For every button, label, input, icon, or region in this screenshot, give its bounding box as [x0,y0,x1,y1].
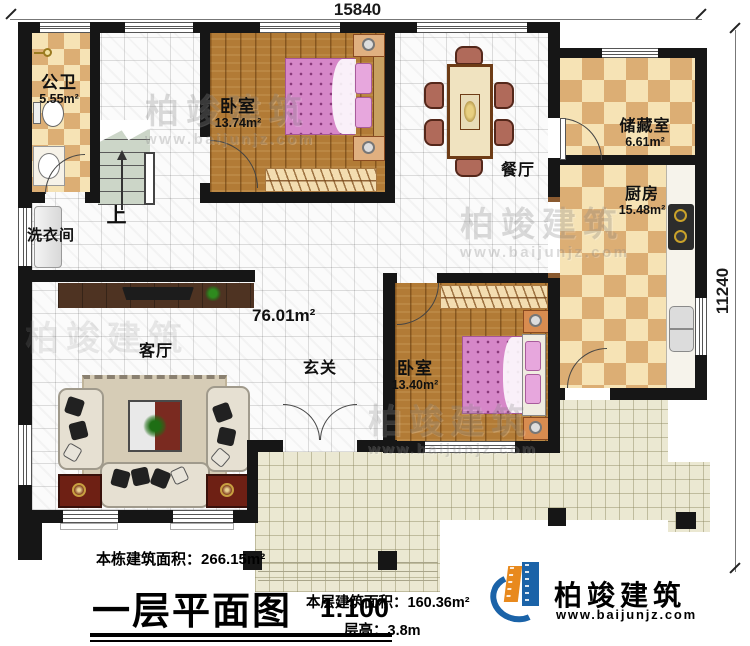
window [417,22,527,33]
nightstand-knob [362,141,375,154]
floor-height: 层高：3.8m [344,619,421,640]
dining-label: 餐厅 [488,162,548,180]
bathroom-label: 公卫 5.55m² [28,74,90,106]
storage-label: 储藏室 6.61m² [602,118,688,149]
logo-tower-blue [522,562,539,606]
bed-blanket [332,59,356,134]
window [125,22,193,33]
column [548,508,566,526]
laundry-label: 洗衣间 [20,228,82,245]
wall [200,192,395,203]
wall [357,440,397,452]
wall [548,22,560,118]
pillow [355,97,372,128]
wall [247,440,258,523]
window [18,425,32,485]
bedroom1-label: 卧室 13.74m² [200,98,276,130]
pillow [355,63,372,94]
end-table-medallion [72,483,86,497]
dining-chair [424,119,444,146]
nightstand-knob [362,38,375,51]
title-underline-thin [90,640,392,642]
dimension-label-right: 11240 [713,246,733,336]
shower-head-icon [43,48,52,57]
open-area-label: 76.01m² [252,306,332,326]
headboard [373,56,385,138]
window [695,298,707,355]
wall [548,158,560,202]
nightstand-knob [529,314,542,327]
dimension-tick [5,8,16,19]
sofa-pillow [216,426,236,446]
dining-chair [455,46,483,65]
floor-area: 本层建筑面积：160.36m² [306,591,470,612]
dining-chair [494,119,514,146]
up-arrow [121,158,123,210]
nightstand-knob [529,421,542,434]
dimension-tick [695,8,706,19]
wall [610,388,707,400]
wall [18,523,42,560]
sink-divider [670,328,693,330]
up-arrow-head [117,150,127,160]
window-sill [60,523,118,530]
stair-rail [144,152,155,205]
dining-chair [455,158,483,177]
plant-icon [205,286,221,301]
wall [548,278,560,453]
window [173,510,233,523]
kitchen-label: 厨房 15.48m² [598,186,686,217]
wall [385,33,395,192]
plant-icon [143,414,167,438]
wall [90,33,100,203]
pillow [525,341,541,371]
dining-chair [424,82,444,109]
door-jamb [548,273,560,278]
sofa-pillow [130,466,150,486]
centerpiece-bowl [464,101,476,122]
wall [437,273,560,283]
plan-title: 一层平面图 [92,580,292,635]
stairs-up-label: 上 [100,205,134,227]
company-logo-icon [488,558,552,628]
window [63,510,118,523]
floor-plan-canvas: 15840 11240 [0,0,750,646]
door-jamb [548,197,560,202]
bedroom2-label: 卧室 13.40m² [375,360,455,392]
wall [18,270,255,282]
window [260,22,340,33]
window-sill [170,523,234,530]
porch-step [258,562,438,563]
burner-icon [674,230,687,243]
living-label: 客厅 [128,343,184,361]
window [602,48,658,58]
dimension-label-top: 15840 [315,0,400,20]
wardrobe [440,285,548,309]
website-url: www.baijunjz.com [556,607,697,622]
end-table-medallion [220,483,234,497]
door-leaf [560,118,566,160]
column [676,512,696,529]
wardrobe [265,168,377,192]
window [40,22,90,33]
window [425,441,515,453]
foyer-label: 玄关 [292,360,348,378]
column [378,551,397,570]
building-area: 本栋建筑面积：266.15m² [96,548,265,569]
wall [18,192,45,203]
dimension-line-right [735,30,736,572]
tv [122,287,194,300]
dining-chair [494,82,514,109]
stairs [98,130,150,205]
porch-step [258,571,438,572]
wall [548,388,565,400]
pillow [525,374,541,404]
